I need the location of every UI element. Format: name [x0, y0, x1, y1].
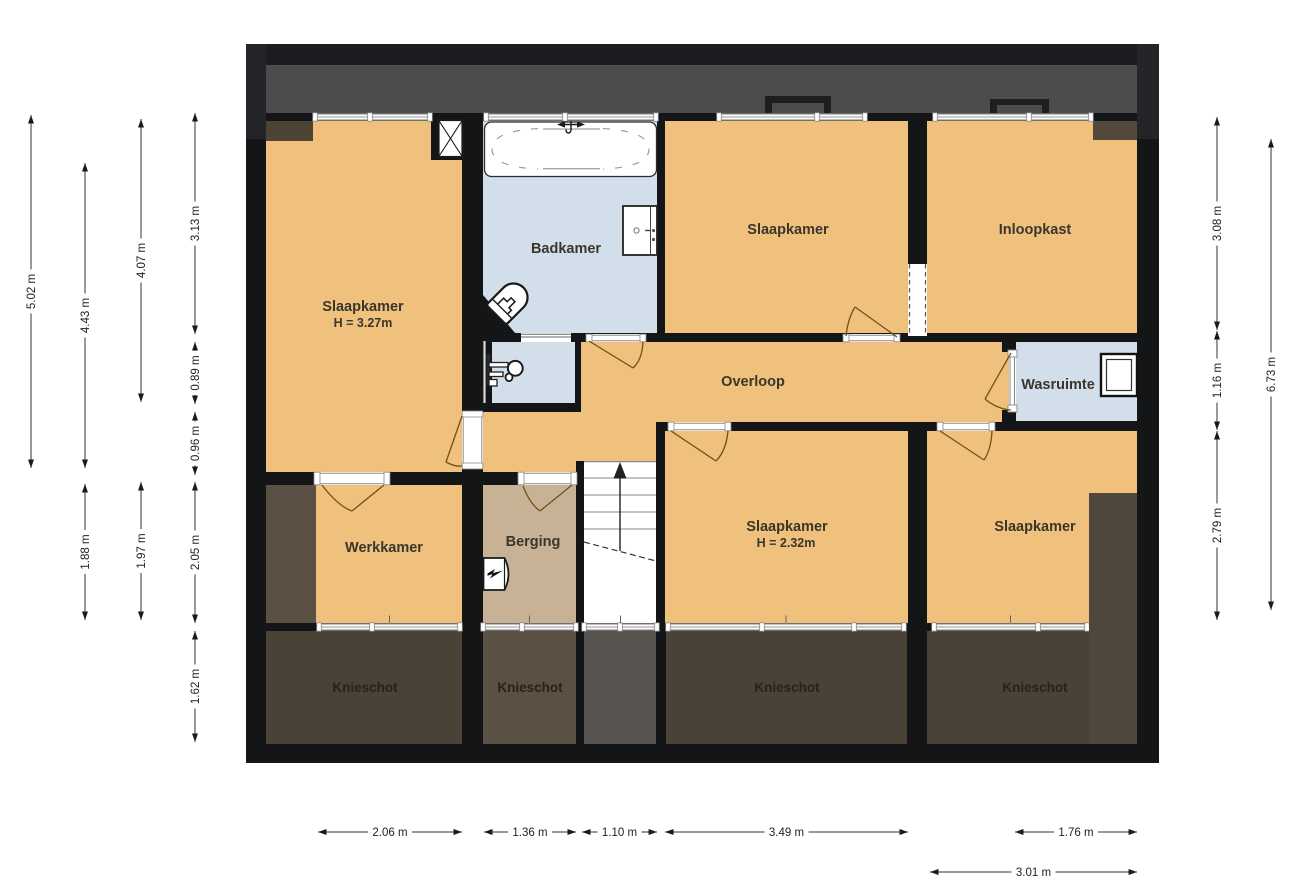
- svg-text:1.36 m: 1.36 m: [512, 827, 547, 839]
- svg-text:3.13 m: 3.13 m: [190, 206, 202, 241]
- svg-text:1.88 m: 1.88 m: [80, 534, 92, 569]
- svg-text:4.43 m: 4.43 m: [80, 298, 92, 333]
- svg-text:Badkamer: Badkamer: [531, 241, 601, 257]
- svg-text:Slaapkamer: Slaapkamer: [746, 519, 828, 535]
- svg-text:5.02 m: 5.02 m: [26, 274, 38, 309]
- svg-text:2.79 m: 2.79 m: [1212, 508, 1224, 543]
- svg-text:6.73 m: 6.73 m: [1266, 357, 1278, 392]
- svg-text:1.62 m: 1.62 m: [190, 669, 202, 704]
- svg-text:Knieschot: Knieschot: [1002, 680, 1068, 695]
- svg-text:Overloop: Overloop: [721, 374, 785, 390]
- svg-text:Inloopkast: Inloopkast: [999, 222, 1072, 238]
- svg-text:Berging: Berging: [506, 534, 561, 550]
- svg-text:3.08 m: 3.08 m: [1212, 206, 1224, 241]
- svg-text:0.96 m: 0.96 m: [190, 426, 202, 461]
- svg-text:Knieschot: Knieschot: [754, 680, 820, 695]
- svg-text:3.01 m: 3.01 m: [1016, 867, 1051, 879]
- svg-text:H = 2.32m: H = 2.32m: [757, 536, 816, 550]
- svg-text:H = 3.27m: H = 3.27m: [334, 316, 393, 330]
- svg-text:1.10 m: 1.10 m: [602, 827, 637, 839]
- svg-text:Knieschot: Knieschot: [497, 680, 563, 695]
- svg-text:2.06 m: 2.06 m: [372, 827, 407, 839]
- svg-text:Werkkamer: Werkkamer: [345, 540, 423, 556]
- svg-text:4.07 m: 4.07 m: [136, 243, 148, 278]
- svg-text:Slaapkamer: Slaapkamer: [747, 222, 829, 238]
- svg-text:1.16 m: 1.16 m: [1212, 363, 1224, 398]
- svg-text:3.49 m: 3.49 m: [769, 827, 804, 839]
- svg-text:0.89 m: 0.89 m: [190, 355, 202, 390]
- svg-text:Wasruimte: Wasruimte: [1021, 377, 1095, 393]
- svg-text:1.97 m: 1.97 m: [136, 533, 148, 568]
- svg-text:Slaapkamer: Slaapkamer: [994, 519, 1076, 535]
- svg-text:2.05 m: 2.05 m: [190, 535, 202, 570]
- svg-text:Knieschot: Knieschot: [332, 680, 398, 695]
- svg-text:1.76 m: 1.76 m: [1058, 827, 1093, 839]
- svg-text:Slaapkamer: Slaapkamer: [322, 299, 404, 315]
